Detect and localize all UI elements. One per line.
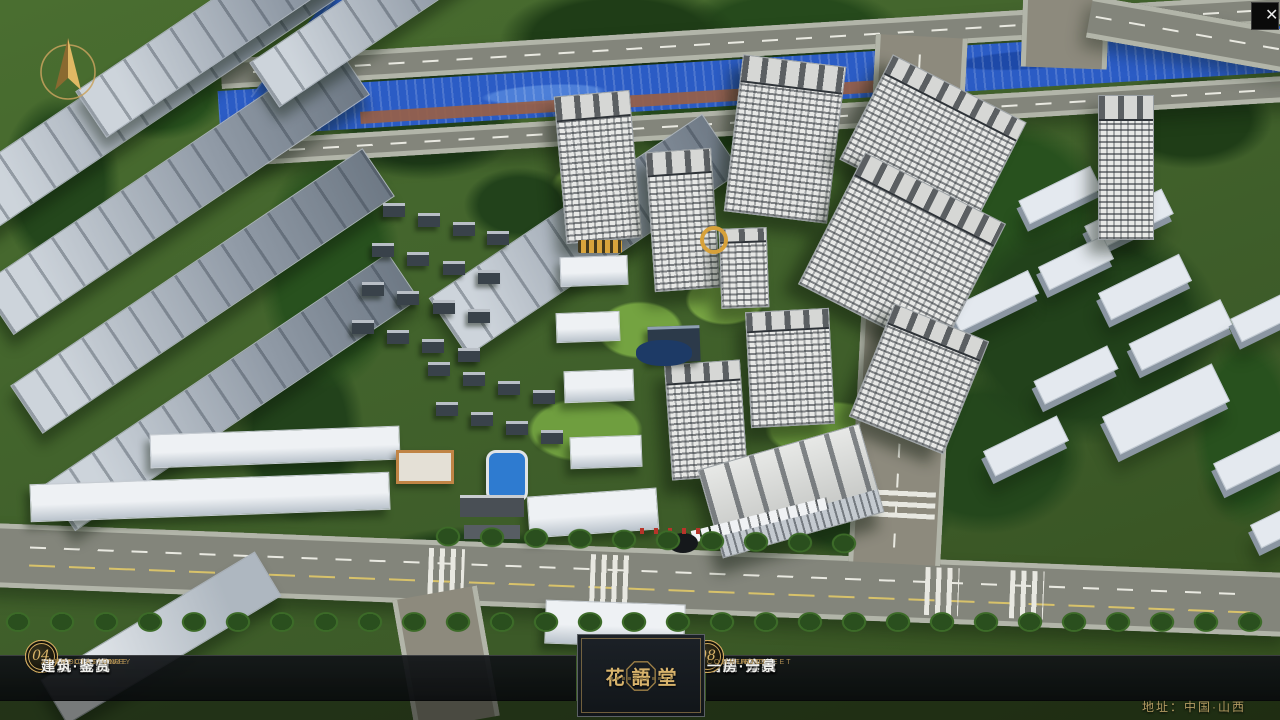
residential-tower — [745, 308, 835, 428]
garden-flat — [555, 311, 620, 343]
landscape-pond — [636, 340, 692, 366]
residential-tower — [724, 54, 846, 223]
close-icon: ✕ — [1265, 3, 1278, 29]
street-trees-north — [430, 516, 871, 564]
project-address: 地址：中国·山西 — [1142, 698, 1246, 715]
garden-flat — [563, 369, 634, 403]
nav-label-en: APPRECIATION — [41, 659, 117, 666]
kindergarten-building — [396, 450, 454, 484]
garden-flat — [559, 255, 628, 287]
residential-tower — [645, 148, 721, 292]
brand-subtitle-text — [610, 677, 672, 680]
offsite-tower-east — [1098, 95, 1154, 240]
shuttle-bus — [578, 240, 622, 253]
residential-tower — [554, 90, 643, 244]
brand-plaque[interactable]: 花語堂 — [577, 634, 705, 717]
playground-ring — [700, 226, 728, 254]
sales-presentation-screen: ✕ 01 品牌·介绍 BRAND SUPPORT 02 区位·价值 LOCATI… — [0, 0, 1280, 720]
bottom-nav-right: 05 园林·景观 GARDEN STREET 06 精装·体验 EXPERIEN… — [706, 655, 1280, 701]
bottom-nav-left: 01 品牌·介绍 BRAND SUPPORT 02 区位·价值 LOCATION… — [0, 655, 576, 701]
traditional-gate-west — [460, 495, 524, 517]
compass-icon — [32, 32, 104, 108]
close-button[interactable]: ✕ — [1251, 2, 1279, 30]
nav-label-en: COMMUNITY — [707, 659, 768, 666]
garden-flat — [569, 435, 642, 469]
masterplan-3d-view[interactable] — [0, 0, 1280, 720]
